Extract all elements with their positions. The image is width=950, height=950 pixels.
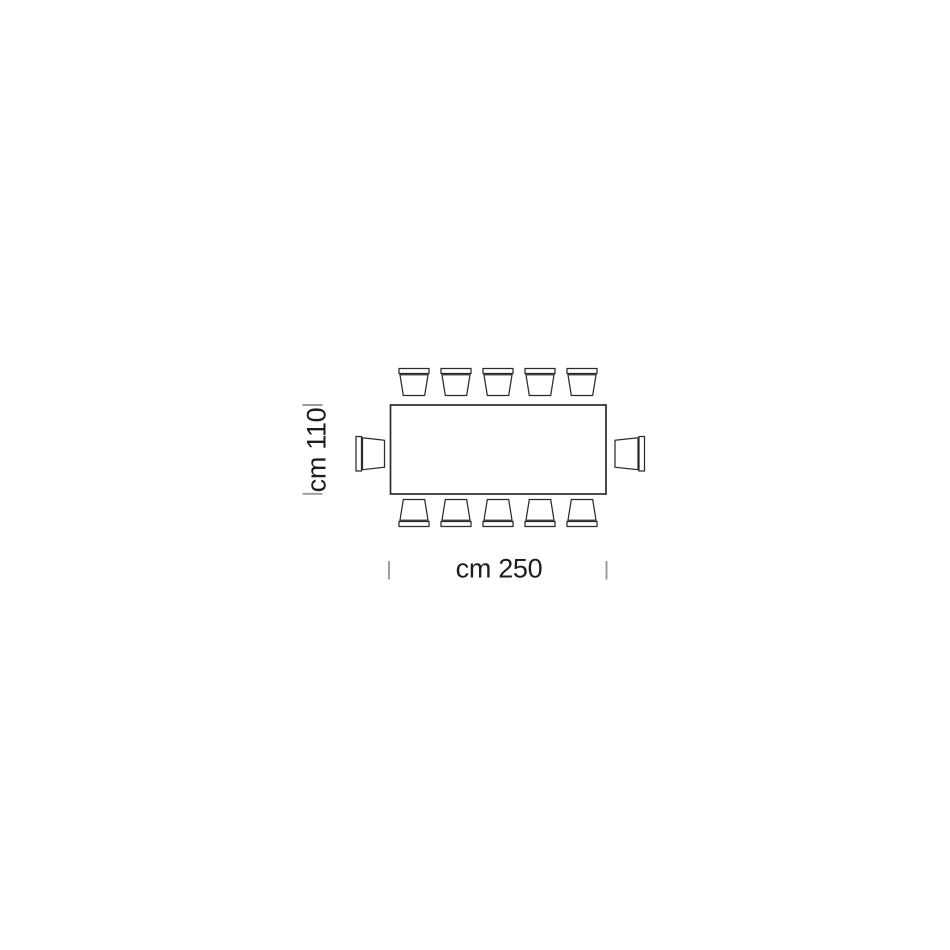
chair-right xyxy=(615,437,645,472)
chair-bottom-5 xyxy=(567,500,597,527)
depth-dimension-label: cm 110 xyxy=(304,408,331,493)
chair-bottom-3 xyxy=(483,500,513,527)
width-dimension-label: cm 250 xyxy=(456,556,543,583)
chair-top-1 xyxy=(399,369,429,396)
chair-top-3 xyxy=(483,369,513,396)
chair-bottom-4 xyxy=(525,500,555,527)
seating-plan-graphic xyxy=(0,0,950,950)
chair-left xyxy=(356,437,385,472)
diagram-canvas: cm 110 cm 250 xyxy=(0,0,950,950)
chair-top-4 xyxy=(525,369,555,396)
table-top xyxy=(391,405,607,494)
chair-top-2 xyxy=(441,369,471,396)
chair-bottom-2 xyxy=(441,500,471,527)
chair-top-5 xyxy=(567,369,597,396)
chair-bottom-1 xyxy=(399,500,429,527)
